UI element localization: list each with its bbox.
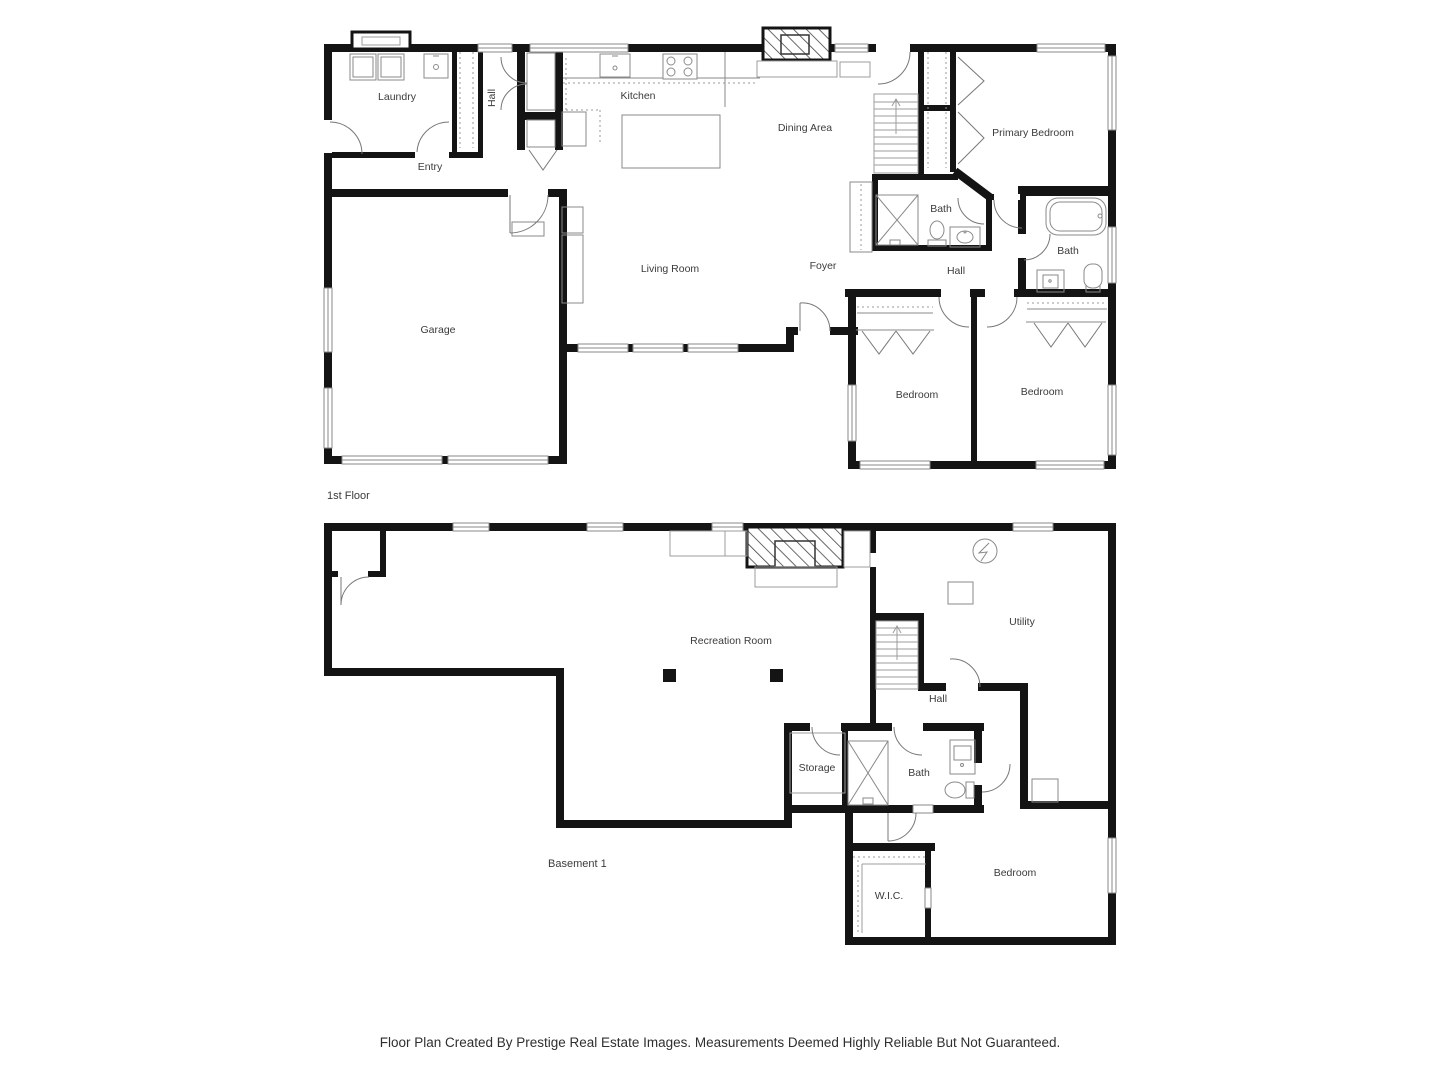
basement-toilet-icon [945, 782, 974, 798]
room-label-bath-1: Bath [930, 203, 952, 215]
kitchen-sink-icon [600, 54, 630, 77]
laundry-sink-icon [424, 54, 448, 78]
washer-icon [350, 54, 376, 80]
toilet-icon [928, 221, 946, 246]
room-label-garage: Garage [420, 324, 455, 336]
water-heater-icon [1032, 779, 1058, 802]
room-label-basement-bath: Bath [908, 767, 930, 779]
vanity-sink-icon [950, 227, 980, 247]
dryer-icon [378, 54, 404, 80]
basement-plan: Recreation Room Utility Hall Storage Bat… [324, 523, 1116, 945]
vanity-sink-icon [1037, 270, 1064, 292]
furnace-icon [948, 582, 973, 604]
bathtub-icon [1046, 198, 1106, 235]
basement-sink-icon [950, 740, 975, 774]
bedroom2-closet [1026, 303, 1107, 347]
room-label-hall-lower: Hall [947, 265, 965, 277]
garage-door [342, 456, 442, 464]
room-label-foyer: Foyer [810, 260, 837, 272]
basement-labels: Recreation Room Utility Hall Storage Bat… [690, 616, 1036, 902]
kitchen-island [622, 115, 720, 168]
room-label-utility: Utility [1009, 616, 1035, 628]
floor-title-basement: Basement 1 [548, 858, 607, 870]
garage-door [448, 456, 548, 464]
room-label-dining-area: Dining Area [778, 122, 832, 134]
room-label-primary-bedroom: Primary Bedroom [992, 127, 1074, 139]
garage-interior [512, 207, 583, 303]
basement-walls [324, 523, 1116, 945]
stairs-icon [874, 94, 918, 173]
diagonal-wall [955, 171, 991, 198]
room-label-bedroom-2: Bedroom [1021, 386, 1064, 398]
basement-fireplace-icon [747, 527, 843, 587]
first-floor-plan: Laundry Hall Kitchen Dining Area Primary… [324, 28, 1116, 502]
kitchen-counter [562, 52, 760, 146]
electrical-panel-icon [973, 539, 997, 563]
first-floor-windows [324, 44, 1116, 469]
basement-windows [453, 523, 1116, 893]
floor-title-1st-floor: 1st Floor [327, 490, 370, 502]
room-label-entry: Entry [418, 161, 443, 173]
floor-plan-page: Laundry Hall Kitchen Dining Area Primary… [0, 0, 1440, 1080]
hall-closet [501, 53, 557, 170]
toilet-icon [1084, 264, 1102, 292]
laundry-chimney-icon [352, 32, 410, 49]
room-label-wic: W.I.C. [875, 890, 904, 902]
footer-disclaimer: Floor Plan Created By Prestige Real Esta… [380, 1035, 1061, 1050]
bedroom1-closet [856, 307, 934, 354]
room-label-living-room: Living Room [641, 263, 700, 275]
room-label-recreation-room: Recreation Room [690, 635, 772, 647]
first-floor-walls [324, 44, 1116, 469]
basement-stairs-icon [876, 621, 918, 689]
room-label-basement-bedroom: Bedroom [994, 867, 1037, 879]
laundry-closet-rod [460, 52, 473, 148]
foyer-closet [850, 182, 872, 252]
shower-icon [876, 195, 918, 245]
room-label-storage: Storage [799, 762, 836, 774]
room-label-hall-upper: Hall [486, 89, 498, 107]
room-label-basement-hall: Hall [929, 693, 947, 705]
room-label-bedroom-1: Bedroom [896, 389, 939, 401]
room-label-laundry: Laundry [378, 91, 417, 103]
floor-plan-drawing: Laundry Hall Kitchen Dining Area Primary… [0, 0, 1440, 1080]
basement-shower-icon [848, 741, 888, 805]
room-label-bath-2: Bath [1057, 245, 1079, 257]
stove-icon [663, 54, 697, 79]
room-label-kitchen: Kitchen [620, 90, 655, 102]
